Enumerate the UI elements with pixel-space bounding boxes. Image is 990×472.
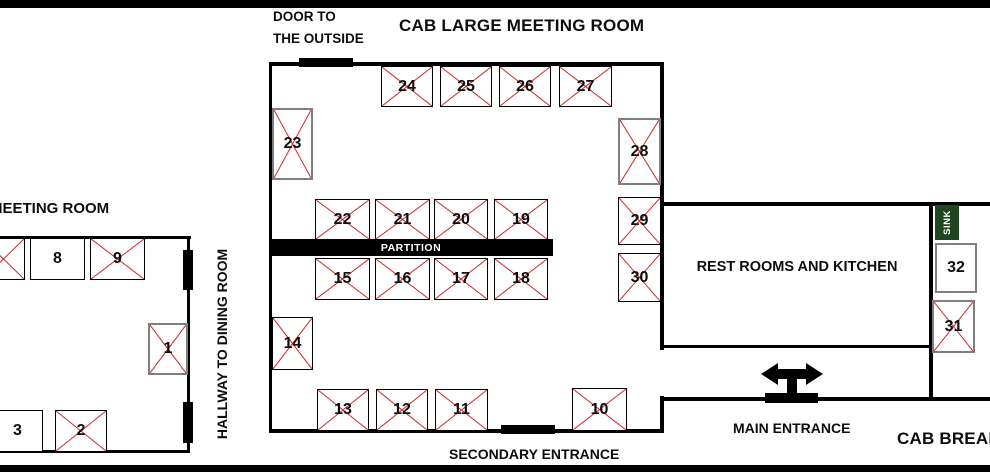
crossed-out-x-icon bbox=[0, 239, 24, 279]
table-26: 26 bbox=[499, 66, 551, 107]
secondary-entrance-door-marker bbox=[501, 425, 555, 434]
table-29: 29 bbox=[618, 197, 661, 245]
table-number: 25 bbox=[457, 78, 475, 96]
small-room-door-marker-lower bbox=[183, 402, 193, 443]
two-way-arrow-icon bbox=[761, 362, 823, 399]
outside-door-marker bbox=[299, 58, 353, 67]
table-30: 30 bbox=[618, 253, 661, 302]
table-18: 18 bbox=[494, 258, 548, 300]
large-meeting-room-title: CAB LARGE MEETING ROOM bbox=[399, 16, 644, 36]
table-17: 17 bbox=[434, 258, 488, 300]
table-number: 20 bbox=[452, 211, 470, 229]
table-number: 29 bbox=[631, 212, 649, 230]
table-28: 28 bbox=[618, 118, 661, 185]
table-number: 17 bbox=[452, 270, 470, 288]
secondary-entrance-label: SECONDARY ENTRANCE bbox=[449, 446, 619, 462]
table-27: 27 bbox=[559, 66, 612, 107]
table-number: 15 bbox=[334, 270, 352, 288]
floorplan: DOOR TO THE OUTSIDE CAB LARGE MEETING RO… bbox=[0, 0, 990, 472]
table-22: 22 bbox=[315, 199, 370, 240]
table-10: 10 bbox=[572, 388, 627, 431]
break-room-title: CAB BREAK bbox=[897, 429, 990, 449]
table-number: 3 bbox=[13, 422, 22, 440]
table-15: 15 bbox=[315, 258, 370, 300]
main-entrance-label: MAIN ENTRANCE bbox=[733, 420, 850, 436]
table-32: 32 bbox=[935, 243, 977, 293]
table-11: 11 bbox=[435, 389, 488, 431]
hallway-to-dining-room-label: HALLWAY TO DINING ROOM bbox=[214, 249, 230, 439]
table-number: 22 bbox=[334, 211, 352, 229]
table-2: 2 bbox=[55, 410, 107, 452]
table-number: 13 bbox=[334, 401, 352, 419]
table-25: 25 bbox=[440, 66, 492, 107]
table-9: 9 bbox=[90, 238, 145, 280]
large-room-right-wall-lower bbox=[660, 396, 664, 433]
table-unlabeled bbox=[0, 238, 25, 280]
door-outside-label-line2: THE OUTSIDE bbox=[273, 31, 364, 46]
table-13: 13 bbox=[317, 389, 369, 431]
table-number: 21 bbox=[394, 211, 412, 229]
table-number: 19 bbox=[512, 211, 530, 229]
table-number: 18 bbox=[512, 270, 530, 288]
table-number: 11 bbox=[453, 401, 470, 419]
entrance-hallway-wall bbox=[660, 397, 990, 401]
table-20: 20 bbox=[434, 199, 488, 240]
table-number: 26 bbox=[516, 78, 534, 96]
table-number: 28 bbox=[631, 143, 649, 161]
table-16: 16 bbox=[375, 258, 430, 300]
door-outside-label-line1: DOOR TO bbox=[273, 9, 336, 24]
sink-label: SINK bbox=[942, 210, 953, 235]
table-number: 23 bbox=[284, 135, 302, 153]
table-21: 21 bbox=[375, 199, 430, 240]
table-1: 1 bbox=[148, 323, 188, 375]
table-number: 31 bbox=[945, 318, 963, 336]
table-number: 12 bbox=[393, 401, 411, 419]
table-24: 24 bbox=[381, 66, 433, 107]
table-14: 14 bbox=[272, 317, 313, 370]
table-23: 23 bbox=[272, 108, 313, 180]
table-number: 14 bbox=[284, 335, 302, 353]
table-19: 19 bbox=[494, 199, 548, 240]
table-number: 16 bbox=[394, 270, 412, 288]
table-number: 27 bbox=[577, 78, 595, 96]
table-12: 12 bbox=[376, 389, 428, 431]
table-number: 2 bbox=[77, 422, 86, 440]
top-border-bar bbox=[0, 0, 990, 8]
restrooms-bottom-wall bbox=[664, 345, 932, 348]
table-number: 1 bbox=[164, 340, 173, 358]
table-number: 9 bbox=[113, 250, 122, 268]
table-8: 8 bbox=[30, 238, 85, 280]
sink-box: SINK bbox=[935, 205, 959, 240]
small-room-door-marker-upper bbox=[183, 250, 193, 290]
restrooms-kitchen-label: REST ROOMS AND KITCHEN bbox=[697, 259, 898, 275]
small-meeting-room-title: MEETING ROOM bbox=[0, 200, 109, 217]
table-number: 30 bbox=[631, 269, 649, 287]
table-31: 31 bbox=[932, 300, 975, 353]
table-number: 10 bbox=[591, 401, 609, 419]
bottom-border-bar bbox=[0, 465, 990, 472]
partition-label: PARTITION bbox=[381, 242, 441, 254]
table-number: 24 bbox=[398, 78, 416, 96]
table-3: 3 bbox=[0, 410, 43, 452]
table-number: 8 bbox=[53, 250, 62, 268]
table-number: 32 bbox=[947, 259, 965, 277]
partition-bar: PARTITION bbox=[269, 239, 553, 256]
